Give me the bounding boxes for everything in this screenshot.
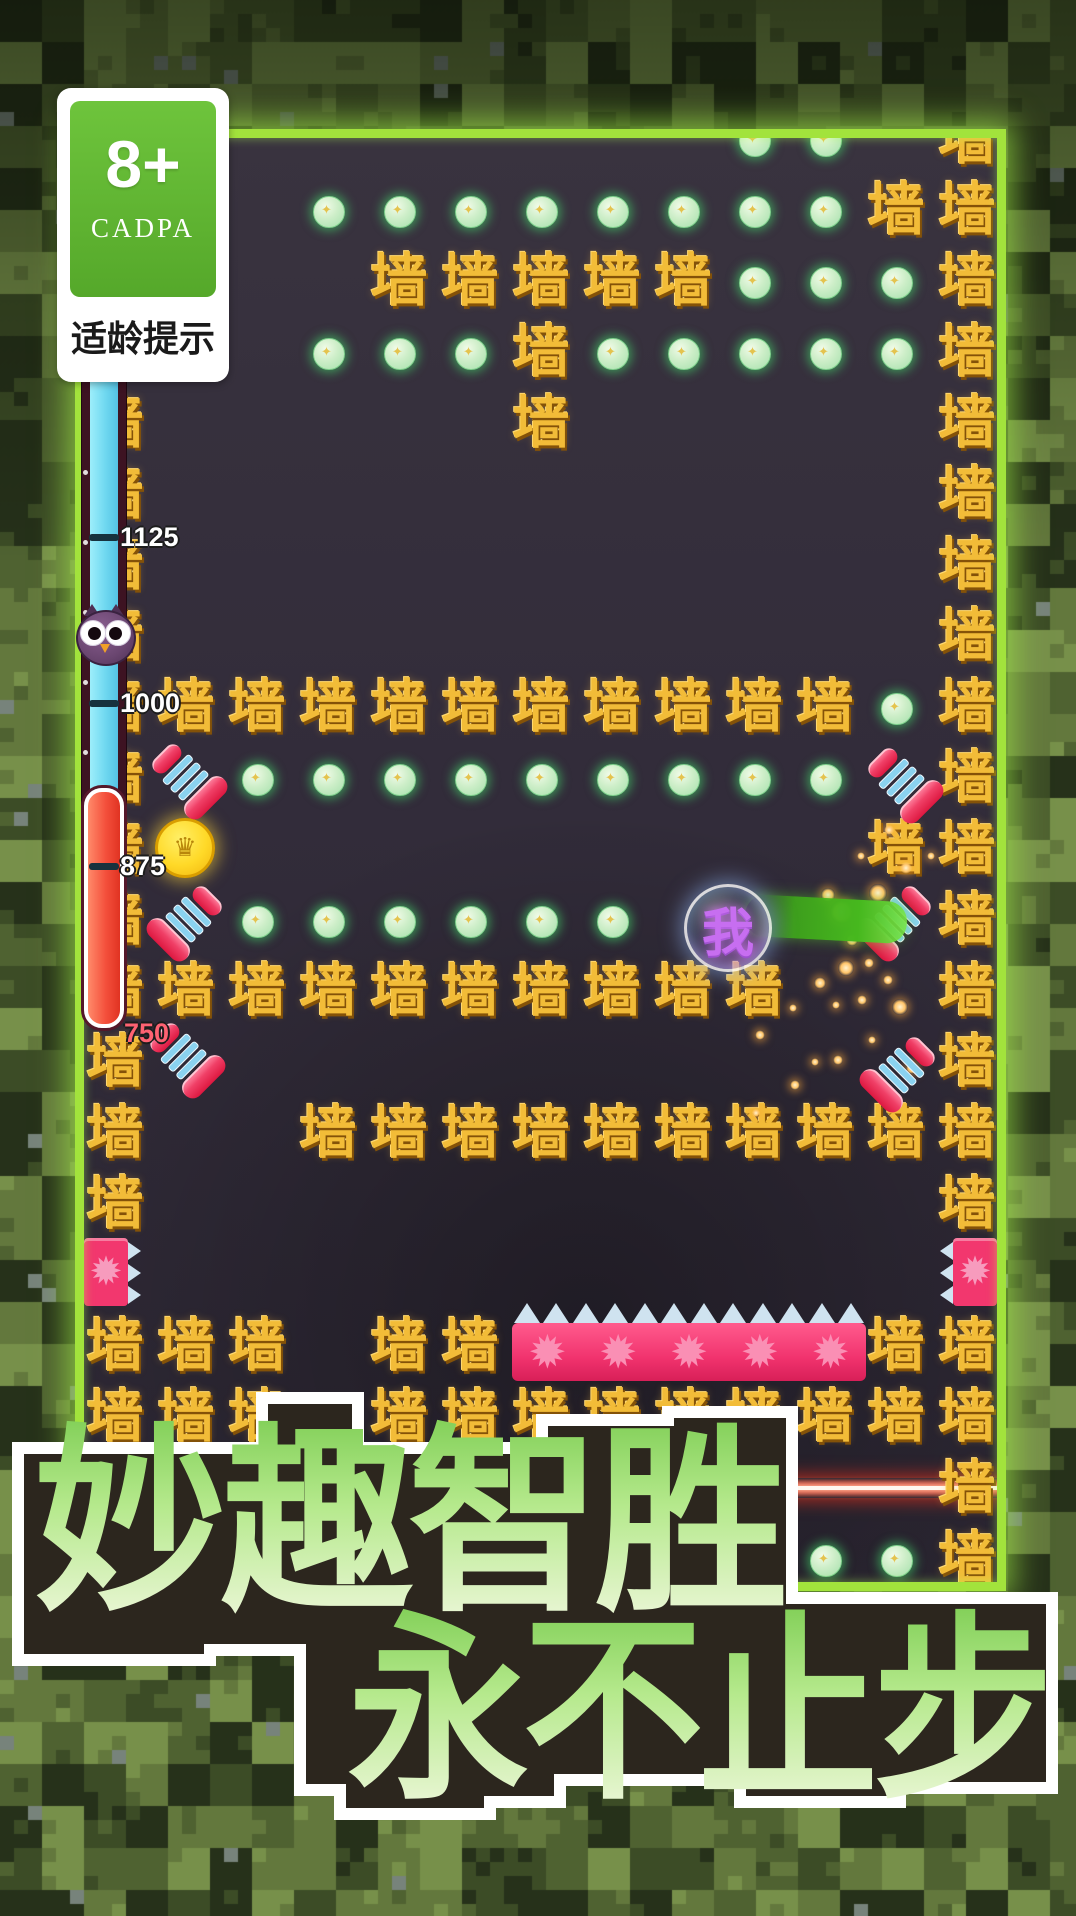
wall-block: 墙 <box>368 1315 430 1379</box>
wall-block: 墙 <box>936 392 997 456</box>
progress-tick-label: 875 <box>120 851 165 882</box>
spring-bumper <box>865 745 941 821</box>
wall-block: 墙 <box>936 138 997 172</box>
wall-block: 墙 <box>936 1457 997 1521</box>
spark-particle <box>814 977 826 989</box>
wall-block: 墙 <box>936 960 997 1024</box>
wall-block: 墙 <box>936 250 997 314</box>
gem-dot: ✦ <box>384 196 416 228</box>
spark-particle <box>789 1004 797 1012</box>
age-rating-value: 8+ <box>70 129 216 199</box>
spark-particle <box>811 1058 819 1066</box>
wall-block: 墙 <box>439 1386 501 1450</box>
gem-dot: ✦ <box>739 138 771 157</box>
progress-end-label: 750 <box>124 1018 169 1049</box>
wall-block: 墙 <box>936 818 997 882</box>
wall-block: 墙 <box>936 321 997 385</box>
gem-dot: ✦ <box>313 196 345 228</box>
spark-particle <box>927 852 935 860</box>
wall-block: 墙 <box>865 1315 927 1379</box>
gem-dot: ✦ <box>242 906 274 938</box>
wall-block: 墙 <box>368 676 430 740</box>
wall-block: 墙 <box>936 1173 997 1237</box>
gem-dot: ✦ <box>526 906 558 938</box>
wall-block: 墙 <box>297 676 359 740</box>
gem-dot: ✦ <box>739 764 771 796</box>
gem-dot: ✦ <box>455 764 487 796</box>
gem-dot: ✦ <box>242 764 274 796</box>
gem-dot: ✦ <box>597 196 629 228</box>
wall-block: 墙 <box>155 1386 217 1450</box>
spike-block: ✹ <box>84 1238 128 1306</box>
gem-dot: ✦ <box>455 196 487 228</box>
spike-tooth <box>940 1264 953 1282</box>
wall-block: 墙 <box>226 960 288 1024</box>
wall-block: 墙 <box>439 1102 501 1166</box>
wall-block: 墙 <box>936 1528 997 1582</box>
wall-block: 墙 <box>510 321 572 385</box>
wall-block: 墙 <box>297 1102 359 1166</box>
wall-block: 墙 <box>652 676 714 740</box>
gem-dot: ✦ <box>597 906 629 938</box>
wall-block: 墙 <box>510 960 572 1024</box>
wall-block: 墙 <box>581 676 643 740</box>
gem-dot: ✦ <box>739 196 771 228</box>
wall-block: 墙 <box>84 1315 146 1379</box>
gem-dot: ✦ <box>455 906 487 938</box>
wall-block: 墙 <box>439 250 501 314</box>
wall-block: 墙 <box>84 1386 146 1450</box>
gem-dot: ✦ <box>739 338 771 370</box>
wall-block: 墙 <box>936 1315 997 1379</box>
wall-block: 墙 <box>652 250 714 314</box>
owl-eye-right <box>105 620 131 646</box>
gem-dot: ✦ <box>313 338 345 370</box>
spark-particle <box>752 1109 760 1117</box>
gem-dot: ✦ <box>668 764 700 796</box>
gem-dot: ✦ <box>739 267 771 299</box>
wall-block: 墙 <box>368 960 430 1024</box>
wall-block: 墙 <box>936 1102 997 1166</box>
gem-dot: ✦ <box>881 693 913 725</box>
gem-dot: ✦ <box>668 338 700 370</box>
wall-block: 墙 <box>439 1315 501 1379</box>
gem-dot: ✦ <box>313 906 345 938</box>
progress-bar-bottom-segment <box>84 788 124 1028</box>
wall-block: 墙 <box>368 1102 430 1166</box>
wall-block: 墙 <box>652 1102 714 1166</box>
bar-edge-dot <box>83 540 88 545</box>
spring-bumper <box>149 883 225 959</box>
gem-dot: ✦ <box>810 267 842 299</box>
spring-bumper <box>149 741 225 817</box>
gem-dot: ✦ <box>810 196 842 228</box>
spring-bumper <box>862 1034 938 1110</box>
gem-dot: ✦ <box>810 138 842 157</box>
spark-particle <box>864 958 874 968</box>
wall-block: 墙 <box>510 1102 572 1166</box>
spark-particle <box>884 825 894 835</box>
gem-dot: ✦ <box>384 906 416 938</box>
wall-block: 墙 <box>226 676 288 740</box>
gem-dot: ✦ <box>384 764 416 796</box>
gem-dot: ✦ <box>455 338 487 370</box>
wall-block: 墙 <box>297 960 359 1024</box>
player-bubble[interactable]: 我 <box>684 884 772 972</box>
wall-block: 墙 <box>581 1386 643 1450</box>
owl-eye-left <box>80 620 106 646</box>
gem-dot: ✦ <box>526 196 558 228</box>
progress-tick <box>89 700 119 707</box>
wall-block: 墙 <box>936 179 997 243</box>
spike-tooth <box>128 1264 141 1282</box>
gem-dot: ✦ <box>881 267 913 299</box>
gem-dot: ✦ <box>597 338 629 370</box>
wall-block: 墙 <box>794 1102 856 1166</box>
wall-block: 墙 <box>368 250 430 314</box>
progress-tick-label: 1125 <box>120 522 179 553</box>
wall-block: 墙 <box>723 1386 785 1450</box>
owl-beak <box>100 644 110 653</box>
wall-block: 墙 <box>155 1315 217 1379</box>
wall-block: 墙 <box>155 960 217 1024</box>
wall-block: 墙 <box>936 889 997 953</box>
wall-block: 墙 <box>865 179 927 243</box>
wall-block: 墙 <box>581 960 643 1024</box>
progress-tick-label: 1000 <box>120 688 180 719</box>
spark-particle <box>755 1030 765 1040</box>
wall-block: 墙 <box>936 676 997 740</box>
gem-dot: ✦ <box>668 196 700 228</box>
wall-block: 墙 <box>226 1386 288 1450</box>
wall-block: 墙 <box>936 747 997 811</box>
wall-block: 墙 <box>936 463 997 527</box>
spark-particle <box>857 852 865 860</box>
spike-block: ✹ <box>953 1238 997 1306</box>
bar-edge-dot <box>83 750 88 755</box>
wall-block: 墙 <box>581 250 643 314</box>
gem-dot: ✦ <box>597 764 629 796</box>
age-rating-box: 8+ CADPA <box>70 101 216 297</box>
wall-block: 墙 <box>936 1031 997 1095</box>
spark-particle <box>790 1080 800 1090</box>
wall-block: 墙 <box>936 534 997 598</box>
wall-block: 墙 <box>84 1102 146 1166</box>
spike-tooth <box>940 1286 953 1304</box>
spike-tooth <box>128 1242 141 1260</box>
wall-block: 墙 <box>510 1386 572 1450</box>
spike-tooth <box>940 1242 953 1260</box>
owl-marker <box>74 604 134 664</box>
wall-block: 墙 <box>723 676 785 740</box>
wall-block: 墙 <box>936 1386 997 1450</box>
wall-block: 墙 <box>794 1386 856 1450</box>
wall-block: 墙 <box>84 1173 146 1237</box>
gem-dot: ✦ <box>526 764 558 796</box>
wall-block: 墙 <box>510 250 572 314</box>
gem-dot: ✦ <box>881 1545 913 1577</box>
wall-block: 墙 <box>936 605 997 669</box>
spike-bar: ✹✹✹✹✹ <box>512 1303 866 1381</box>
wall-block: 墙 <box>226 1315 288 1379</box>
age-rating-badge: 8+ CADPA 适龄提示 <box>57 88 229 382</box>
wall-block: 墙 <box>794 676 856 740</box>
wall-block: 墙 <box>865 1386 927 1450</box>
gem-dot: ✦ <box>313 764 345 796</box>
spark-particle <box>838 960 854 976</box>
wall-block: 墙 <box>510 392 572 456</box>
spark-particle <box>857 995 867 1005</box>
gem-dot: ✦ <box>739 1545 771 1577</box>
spark-particle <box>900 862 912 874</box>
bar-edge-dot <box>83 470 88 475</box>
spark-particle <box>892 999 908 1015</box>
gem-dot: ✦ <box>810 764 842 796</box>
gem-dot: ✦ <box>384 338 416 370</box>
bar-edge-dot <box>83 680 88 685</box>
gem-dot: ✦ <box>810 338 842 370</box>
age-rating-caption: 适龄提示 <box>57 310 229 362</box>
player-character: 我 <box>702 891 754 966</box>
wall-block: 墙 <box>652 960 714 1024</box>
gem-dot: ✦ <box>881 338 913 370</box>
age-rating-org: CADPA <box>70 213 216 244</box>
wall-block: 墙 <box>439 676 501 740</box>
wall-block: 墙 <box>368 1386 430 1450</box>
spark-particle <box>883 975 893 985</box>
wall-block: 墙 <box>439 960 501 1024</box>
wall-block: 墙 <box>581 1102 643 1166</box>
wall-block: 墙 <box>865 818 927 882</box>
spark-particle <box>832 1001 840 1009</box>
progress-tick <box>89 863 119 870</box>
spark-particle <box>833 1055 843 1065</box>
wall-block: 墙 <box>652 1386 714 1450</box>
progress-tick <box>89 534 119 541</box>
gem-dot: ✦ <box>810 1545 842 1577</box>
wall-block: 墙 <box>510 676 572 740</box>
spike-tooth <box>128 1286 141 1304</box>
